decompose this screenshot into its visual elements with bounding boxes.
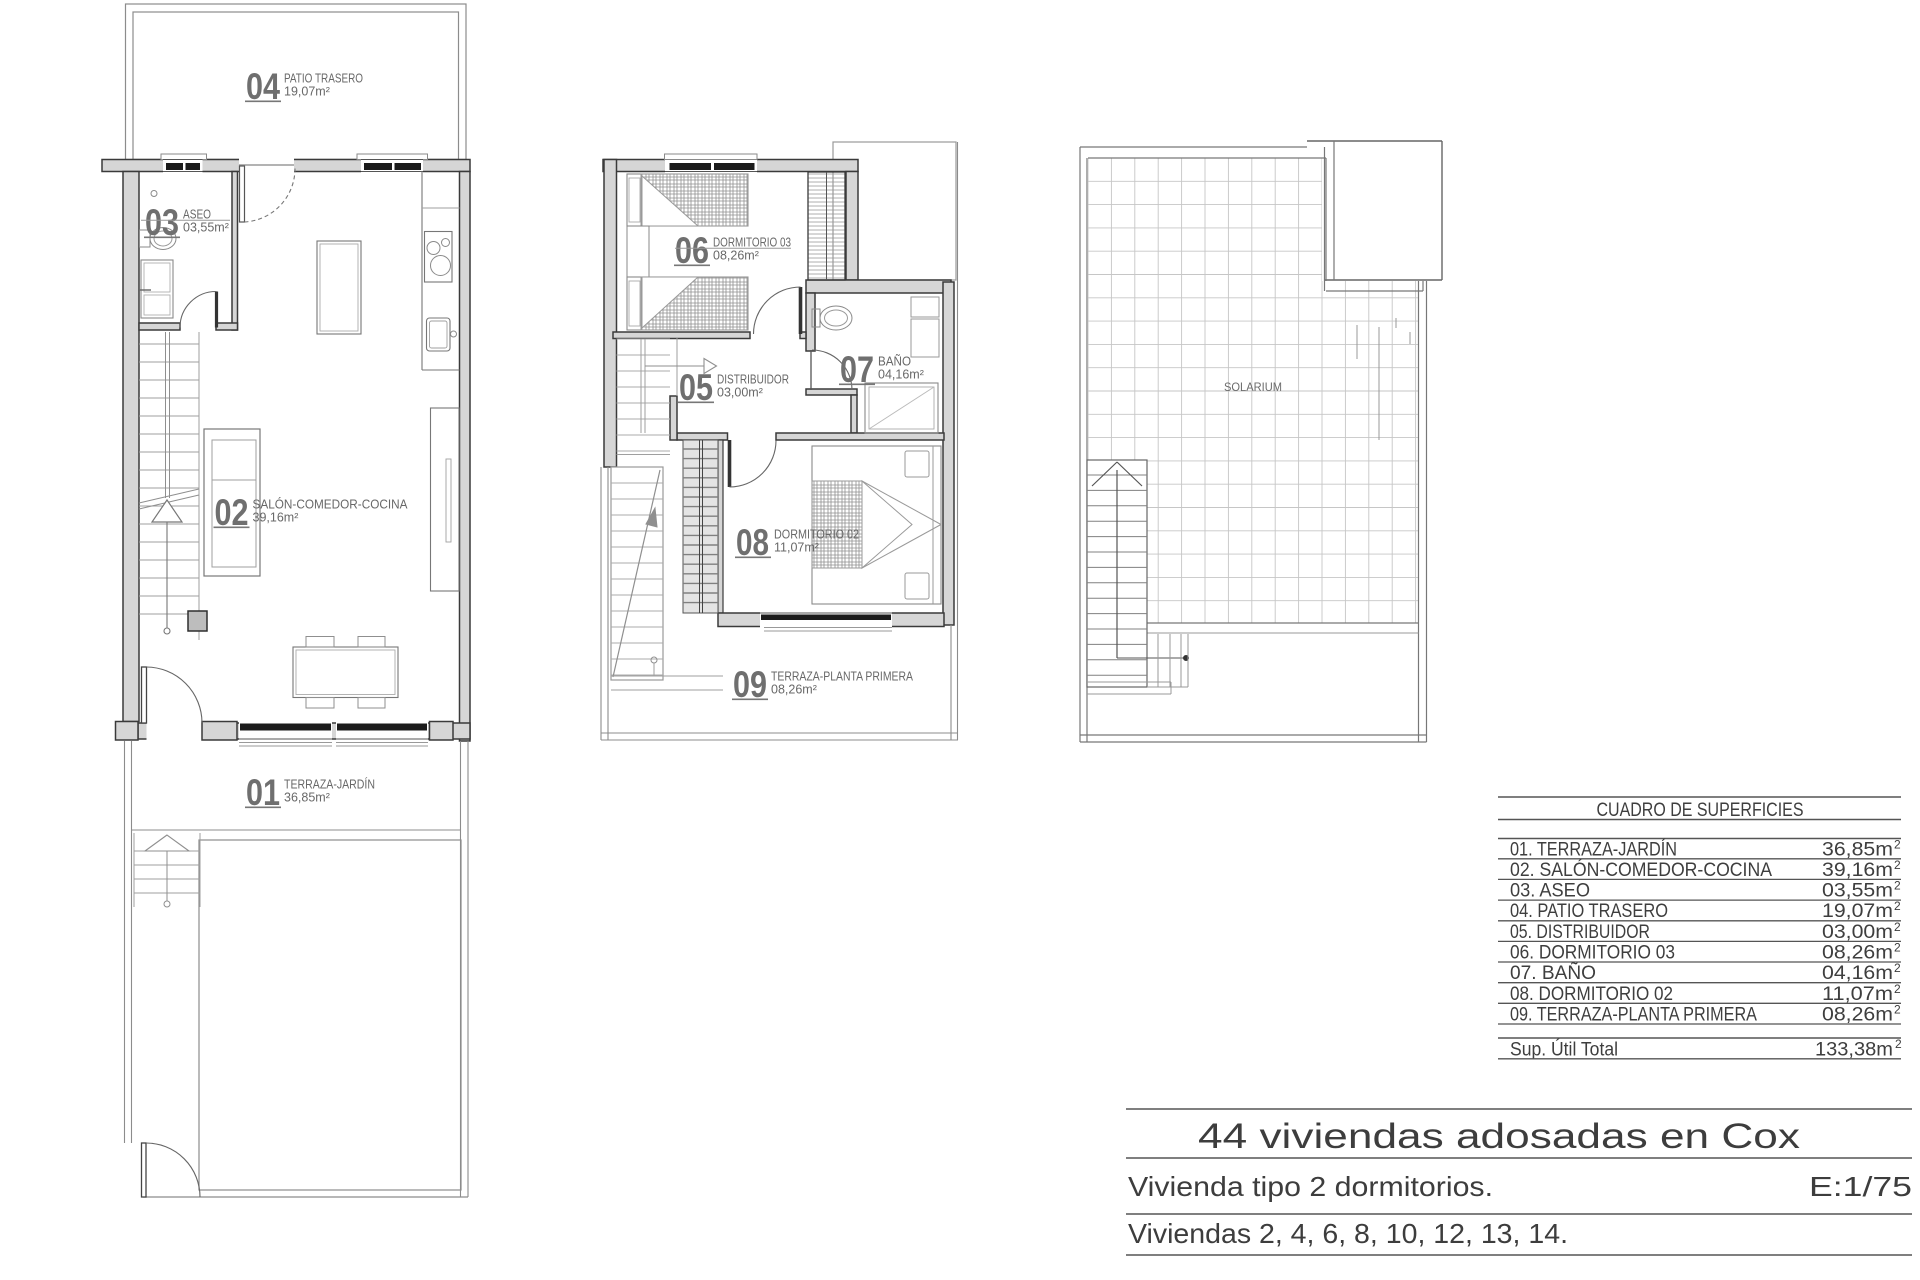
svg-text:03,00m²: 03,00m² [717,386,763,400]
svg-text:04. PATIO TRASERO: 04. PATIO TRASERO [1510,901,1668,922]
svg-text:05. DISTRIBUIDOR: 05. DISTRIBUIDOR [1510,922,1650,943]
svg-text:06. DORMITORIO 03: 06. DORMITORIO 03 [1510,943,1675,964]
svg-text:03,00m: 03,00m [1822,922,1893,943]
svg-text:DISTRIBUIDOR: DISTRIBUIDOR [717,372,789,387]
svg-text:ASEO: ASEO [183,207,211,222]
svg-text:2: 2 [1894,941,1901,955]
svg-text:03,55m²: 03,55m² [183,221,229,235]
svg-text:2: 2 [1894,1003,1901,1017]
svg-text:01. TERRAZA-JARDÍN: 01. TERRAZA-JARDÍN [1510,839,1677,860]
svg-text:Sup. Útil Total: Sup. Útil Total [1510,1039,1618,1061]
svg-text:2: 2 [1894,899,1901,913]
svg-text:36,85m²: 36,85m² [284,791,330,805]
svg-text:08,26m²: 08,26m² [713,249,759,263]
svg-text:36,85m: 36,85m [1822,839,1893,860]
svg-text:04,16m: 04,16m [1822,963,1893,984]
svg-text:2: 2 [1894,858,1901,872]
svg-text:Viviendas 2, 4, 6, 8, 10, 12,: Viviendas 2, 4, 6, 8, 10, 12, 13, 14. [1128,1218,1568,1249]
svg-text:CUADRO DE SUPERFICIES: CUADRO DE SUPERFICIES [1597,800,1804,821]
svg-text:PATIO TRASERO: PATIO TRASERO [284,71,363,86]
svg-text:08,26m: 08,26m [1822,1005,1893,1026]
svg-text:03,55m: 03,55m [1822,881,1893,902]
svg-text:08,26m²: 08,26m² [771,683,817,697]
svg-text:Vivienda tipo 2 dormitorios.: Vivienda tipo 2 dormitorios. [1128,1171,1493,1202]
svg-text:2: 2 [1895,1037,1902,1051]
svg-text:2: 2 [1894,879,1901,893]
svg-text:E:1/75: E:1/75 [1809,1171,1912,1202]
svg-text:19,07m: 19,07m [1822,901,1893,922]
svg-text:02. SALÓN-COMEDOR-COCINA: 02. SALÓN-COMEDOR-COCINA [1510,859,1772,881]
svg-text:11,07m: 11,07m [1822,984,1893,1005]
svg-text:44 viviendas adosadas en Cox: 44 viviendas adosadas en Cox [1198,1117,1801,1156]
svg-text:07. BAÑO: 07. BAÑO [1510,962,1596,984]
svg-text:39,16m²: 39,16m² [253,511,299,525]
svg-text:133,38m: 133,38m [1815,1040,1893,1061]
svg-text:TERRAZA-PLANTA PRIMERA: TERRAZA-PLANTA PRIMERA [771,669,913,684]
svg-text:DORMITORIO 02: DORMITORIO 02 [774,527,859,542]
svg-text:11,07m²: 11,07m² [774,541,819,555]
svg-text:08,26m: 08,26m [1822,943,1893,964]
svg-text:04,16m²: 04,16m² [878,368,924,382]
svg-text:2: 2 [1894,982,1901,996]
svg-text:19,07m²: 19,07m² [284,85,330,99]
svg-text:2: 2 [1894,920,1901,934]
svg-text:09. TERRAZA-PLANTA PRIMERA: 09. TERRAZA-PLANTA PRIMERA [1510,1005,1757,1026]
svg-text:TERRAZA-JARDÍN: TERRAZA-JARDÍN [284,777,375,792]
svg-text:2: 2 [1894,961,1901,975]
svg-text:SALÓN-COMEDOR-COCINA: SALÓN-COMEDOR-COCINA [253,497,408,512]
svg-text:03. ASEO: 03. ASEO [1510,881,1590,902]
svg-text:SOLARIUM: SOLARIUM [1224,382,1282,394]
svg-text:39,16m: 39,16m [1822,860,1893,881]
svg-text:2: 2 [1894,837,1901,851]
svg-text:DORMITORIO 03: DORMITORIO 03 [713,235,791,250]
svg-text:BAÑO: BAÑO [878,354,911,369]
svg-text:08. DORMITORIO 02: 08. DORMITORIO 02 [1510,984,1673,1005]
